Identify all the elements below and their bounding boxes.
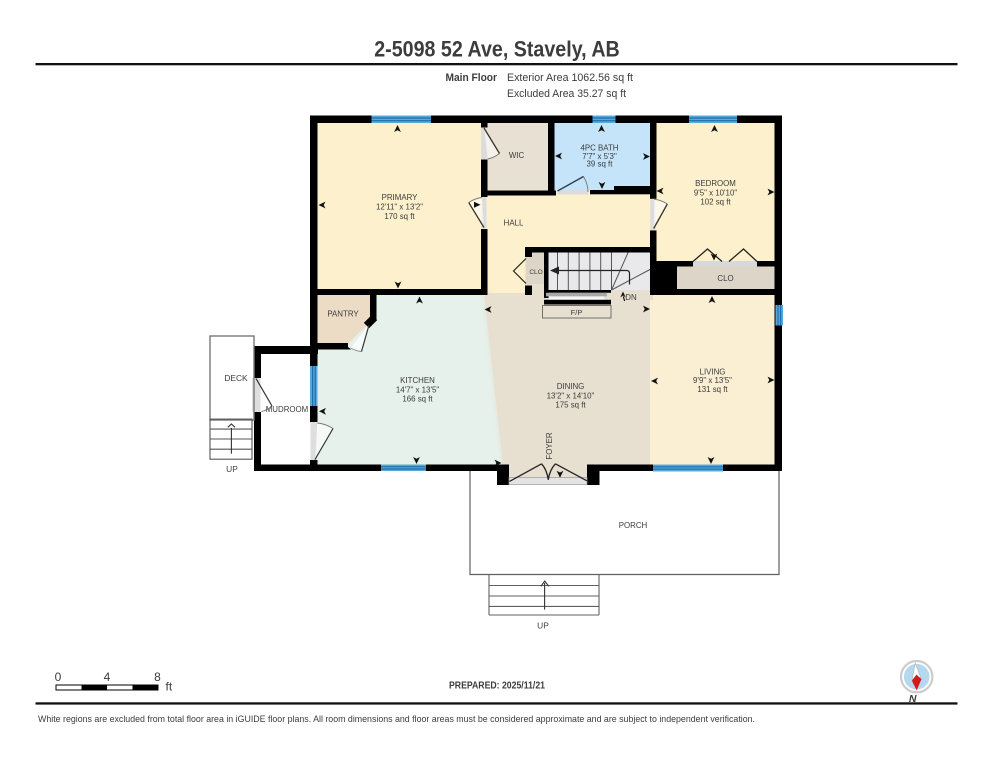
svg-text:9'5" x 10'10": 9'5" x 10'10" [694,188,737,197]
svg-text:BEDROOM: BEDROOM [695,179,736,188]
svg-text:102 sq ft: 102 sq ft [700,198,731,207]
svg-text:ft: ft [166,680,173,694]
svg-text:12'11" x 13'2": 12'11" x 13'2" [376,203,423,212]
svg-text:Excluded Area 35.27 sq ft: Excluded Area 35.27 sq ft [507,88,627,100]
svg-text:2-5098 52 Ave, Stavely, AB: 2-5098 52 Ave, Stavely, AB [374,37,620,62]
svg-text:PORCH: PORCH [619,521,648,530]
svg-text:166 sq ft: 166 sq ft [402,395,433,404]
svg-text:UP: UP [226,464,238,474]
svg-text:DECK: DECK [224,373,248,383]
svg-text:175 sq ft: 175 sq ft [555,401,586,410]
svg-text:MUDROOM: MUDROOM [266,405,309,414]
svg-text:Main Floor: Main Floor [446,72,498,84]
svg-text:Exterior Area 1062.56 sq ft: Exterior Area 1062.56 sq ft [507,72,634,84]
svg-text:KITCHEN: KITCHEN [400,376,435,385]
svg-text:UP: UP [537,621,549,631]
svg-text:White regions are excluded fro: White regions are excluded from total fl… [38,714,755,724]
svg-text:PREPARED: 2025/11/21: PREPARED: 2025/11/21 [449,680,545,692]
svg-text:14'7" x 13'5": 14'7" x 13'5" [396,385,439,394]
svg-text:F/P: F/P [571,308,583,317]
svg-text:131 sq ft: 131 sq ft [697,385,728,394]
svg-text:LIVING: LIVING [700,368,726,377]
svg-text:8: 8 [154,670,161,684]
svg-text:0: 0 [55,670,62,684]
svg-text:39 sq ft: 39 sq ft [587,160,614,169]
svg-text:WIC: WIC [509,151,525,160]
svg-text:CLO: CLO [717,274,733,283]
svg-text:PRIMARY: PRIMARY [382,193,419,202]
svg-text:170 sq ft: 170 sq ft [384,212,415,221]
svg-text:13'2" x 14'10": 13'2" x 14'10" [547,391,595,400]
svg-text:DN: DN [625,293,637,302]
svg-text:DINING: DINING [557,382,585,391]
svg-text:4: 4 [104,670,111,684]
svg-text:CLO: CLO [529,269,542,276]
svg-text:9'9" x 13'5": 9'9" x 13'5" [693,376,732,385]
svg-text:HALL: HALL [504,219,524,228]
svg-text:FOYER: FOYER [545,432,554,459]
svg-text:PANTRY: PANTRY [327,310,359,319]
